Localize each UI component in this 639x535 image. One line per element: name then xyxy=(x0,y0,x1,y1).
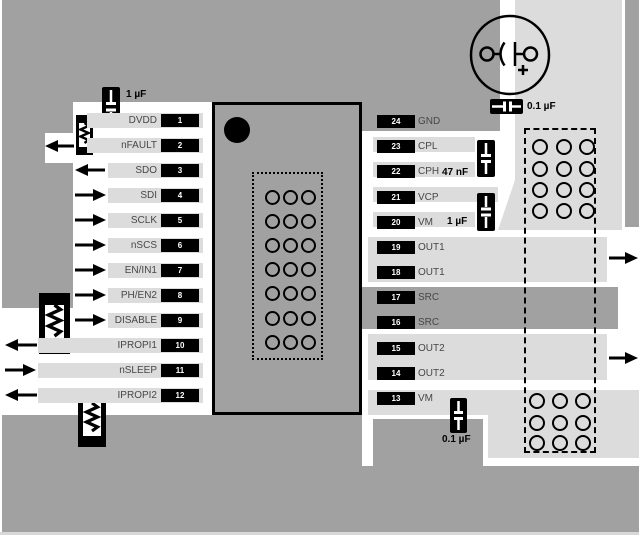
plane-via xyxy=(532,182,548,198)
plane-via xyxy=(556,182,572,198)
label-cap-vm-bypass: 0.1 µF xyxy=(442,434,471,445)
via-array-outline xyxy=(524,128,596,453)
plane-via xyxy=(579,182,595,198)
thermal-via xyxy=(301,238,316,253)
thermal-via xyxy=(283,262,298,277)
pin-number-right-24: 24 xyxy=(377,115,415,128)
resistor-ipropi1 xyxy=(39,293,70,354)
capacitor-dvdd xyxy=(102,87,120,127)
label-cap-vcp: 1 µF xyxy=(447,216,467,227)
plane-via xyxy=(552,393,568,409)
thermal-pad-outline xyxy=(252,172,323,360)
thermal-via xyxy=(265,311,280,326)
thermal-via xyxy=(301,262,316,277)
thermal-via xyxy=(283,238,298,253)
thermal-via xyxy=(283,214,298,229)
thermal-via xyxy=(265,335,280,350)
pin1-marker-dot xyxy=(224,117,250,143)
route-area-left xyxy=(73,102,213,415)
plane-via xyxy=(579,203,595,219)
thermal-via xyxy=(301,190,316,205)
plane-via xyxy=(552,415,568,431)
thermal-via xyxy=(301,214,316,229)
thermal-via xyxy=(283,190,298,205)
plane-via xyxy=(532,139,548,155)
thermal-via xyxy=(283,286,298,301)
plane-via xyxy=(532,203,548,219)
plane-via xyxy=(579,161,595,177)
plane-via xyxy=(529,415,545,431)
route-area-nfault-notch xyxy=(45,133,73,163)
plane-via xyxy=(579,139,595,155)
plane-via xyxy=(556,203,572,219)
label-cap-dvdd: 1 µF xyxy=(126,89,146,100)
plane-via xyxy=(575,435,591,451)
thermal-via xyxy=(301,311,316,326)
thermal-via xyxy=(265,238,280,253)
plane-via xyxy=(556,161,572,177)
thermal-via xyxy=(265,214,280,229)
pcb-layout-diagram: 1 µF 0.1 µF 47 nF 1 µF 0.1 µF DVDD1nFAUL… xyxy=(0,0,639,535)
label-cap-bulk-bypass: 0.1 µF xyxy=(527,101,556,112)
thermal-via xyxy=(301,335,316,350)
plane-via xyxy=(529,393,545,409)
thermal-via xyxy=(301,286,316,301)
trace-vm13 xyxy=(368,390,639,415)
capacitor-flying xyxy=(477,140,495,177)
pin-label-right-24: GND xyxy=(418,114,440,129)
plane-via xyxy=(575,393,591,409)
ground-bar-right xyxy=(625,0,639,227)
capacitor-vm-bypass xyxy=(450,398,467,433)
thermal-via xyxy=(283,311,298,326)
ic-package xyxy=(212,102,362,415)
capacitor-bulk-bypass xyxy=(490,99,523,114)
label-cap-flying: 47 nF xyxy=(442,167,468,178)
board-edge-left xyxy=(0,0,2,535)
capacitor-vcp xyxy=(477,193,495,231)
plane-via xyxy=(552,435,568,451)
resistor-nfault-pullup xyxy=(76,115,93,155)
plane-via xyxy=(532,161,548,177)
plane-via xyxy=(575,415,591,431)
thermal-via xyxy=(283,335,298,350)
trace-cpl xyxy=(373,137,475,152)
plane-via xyxy=(529,435,545,451)
plane-via xyxy=(556,139,572,155)
resistor-ipropi2 xyxy=(78,392,106,447)
thermal-via xyxy=(265,190,280,205)
thermal-via xyxy=(265,262,280,277)
bulk-capacitor-symbol xyxy=(468,13,552,97)
thermal-via xyxy=(265,286,280,301)
